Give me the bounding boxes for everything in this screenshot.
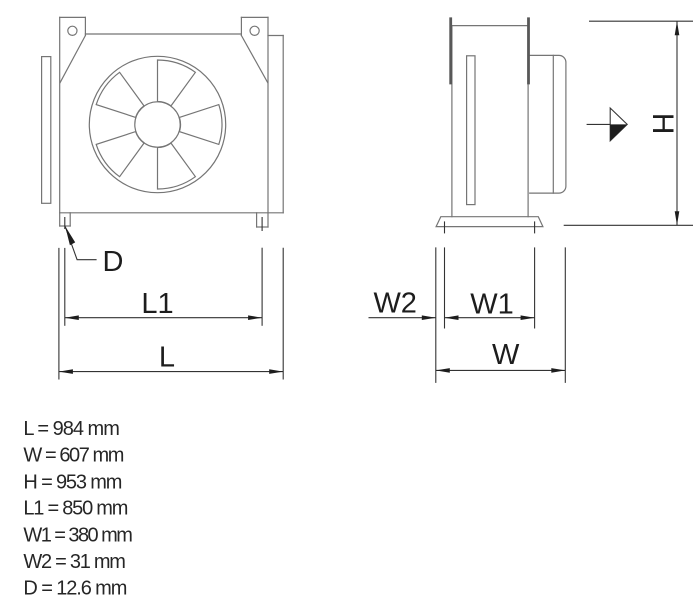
svg-text:H: H — [646, 113, 679, 135]
svg-text:H = 953 mm: H = 953 mm — [23, 471, 122, 493]
svg-text:L1 = 850 mm: L1 = 850 mm — [23, 498, 128, 520]
svg-text:W2: W2 — [373, 288, 417, 320]
svg-text:L1: L1 — [141, 288, 173, 320]
svg-text:L: L — [159, 342, 175, 374]
svg-text:W: W — [492, 339, 520, 371]
svg-text:D: D — [103, 246, 124, 278]
svg-text:W = 607 mm: W = 607 mm — [23, 445, 124, 467]
svg-text:W1: W1 — [470, 289, 514, 321]
svg-text:W2 = 31 mm: W2 = 31 mm — [23, 551, 126, 573]
svg-text:L = 984 mm: L = 984 mm — [23, 418, 120, 440]
svg-text:D = 12.6 mm: D = 12.6 mm — [23, 578, 127, 600]
svg-text:W1 = 380 mm: W1 = 380 mm — [23, 524, 132, 546]
